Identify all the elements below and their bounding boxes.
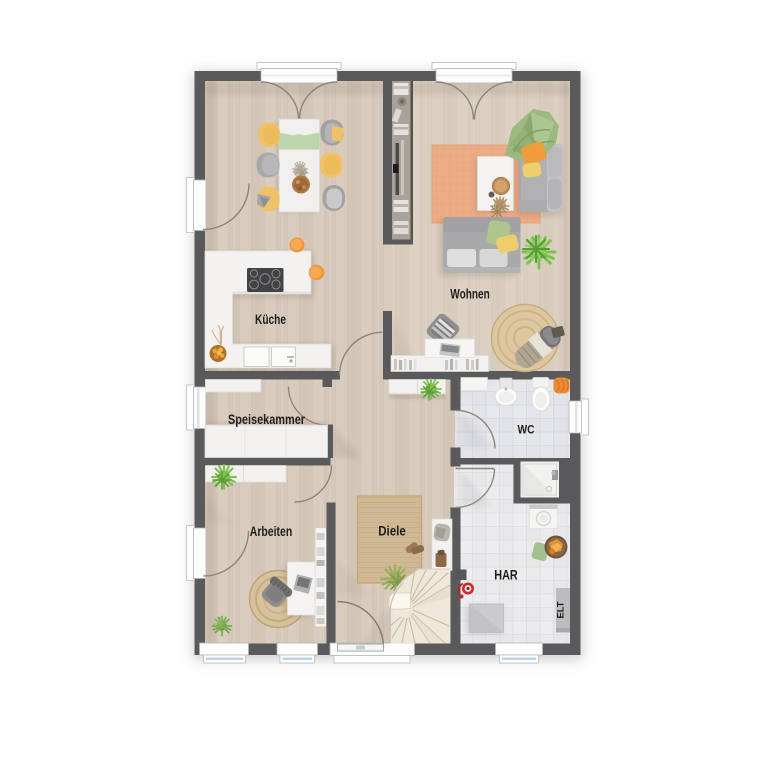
svg-text:Diele: Diele <box>378 524 406 539</box>
svg-text:ELT: ELT <box>556 601 567 618</box>
svg-text:Speisekammer: Speisekammer <box>228 412 306 427</box>
svg-text:HAR: HAR <box>494 568 518 583</box>
svg-text:WC: WC <box>518 423 535 437</box>
svg-text:Küche: Küche <box>255 312 286 327</box>
svg-text:Wohnen: Wohnen <box>450 287 490 302</box>
svg-text:Arbeiten: Arbeiten <box>250 524 293 539</box>
